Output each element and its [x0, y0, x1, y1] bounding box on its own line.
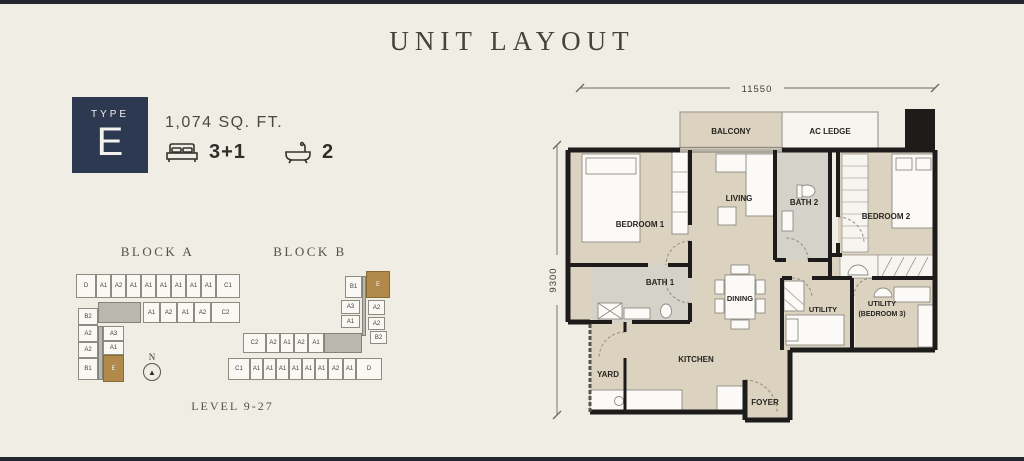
- unit-cell-highlight: E: [366, 271, 390, 298]
- unit-layout-page: UNIT LAYOUT TYPE E 1,074 SQ. FT. 3+1: [0, 0, 1024, 461]
- label-ac-ledge: AC LEDGE: [809, 127, 851, 136]
- unit-cell: A3: [341, 300, 360, 314]
- structural-column: [905, 109, 935, 150]
- type-label: TYPE: [91, 109, 129, 120]
- label-bedroom1: BEDROOM 1: [616, 220, 665, 229]
- north-arrow-icon: ▲: [143, 363, 161, 381]
- unit-cell: C2: [243, 333, 266, 353]
- unit-cell: A1: [315, 358, 328, 380]
- unit-cell: A1: [302, 358, 315, 380]
- unit-counts: 3+1 2: [165, 140, 334, 164]
- unit-cell: A1: [186, 274, 201, 298]
- unit-cell: A1: [308, 333, 324, 353]
- unit-cell: B1: [78, 358, 98, 380]
- unit-cell: A1: [341, 315, 360, 328]
- unit-cell: A1: [171, 274, 186, 298]
- north-label: N: [141, 352, 163, 362]
- label-bath1: BATH 1: [646, 278, 675, 287]
- block-a-title: BLOCK A: [70, 244, 245, 260]
- label-yard: YARD: [597, 370, 619, 379]
- unit-cell: A2: [78, 325, 98, 342]
- bed-icon: [165, 140, 199, 164]
- label-utility: UTILITY: [809, 305, 837, 314]
- label-kitchen: KITCHEN: [678, 355, 714, 364]
- unit-cell: A2: [328, 358, 343, 380]
- label-bedroom2: BEDROOM 2: [862, 212, 911, 221]
- block-b-plan: B1EA3A2A1A2B2C2A2A1A2A1C1A1A1A1A1A1A1A2A…: [225, 262, 420, 402]
- type-badge: TYPE E: [72, 97, 148, 173]
- dimension-width: 11550: [742, 84, 773, 95]
- unit-cell: D: [76, 274, 96, 298]
- core-cell: [324, 333, 362, 353]
- dimension-height: 9300: [548, 267, 559, 292]
- unit-cell: A1: [177, 302, 194, 323]
- unit-cell: A1: [143, 302, 160, 323]
- unit-cell: A1: [250, 358, 263, 380]
- unit-cell: A1: [156, 274, 171, 298]
- block-b-title: BLOCK B: [235, 244, 385, 260]
- unit-cell: C1: [228, 358, 250, 380]
- unit-cell: A1: [280, 333, 294, 353]
- floor-plan: 11550 9300: [520, 75, 990, 433]
- unit-cell: A2: [111, 274, 126, 298]
- level-range: LEVEL 9-27: [150, 399, 315, 414]
- unit-cell: A2: [78, 342, 98, 358]
- unit-cell: A2: [368, 300, 385, 315]
- label-living: LIVING: [726, 194, 753, 203]
- bath-icon: [284, 140, 312, 164]
- unit-cell: A2: [266, 333, 280, 353]
- top-border-bar: [0, 0, 1024, 4]
- unit-cell: A1: [201, 274, 216, 298]
- unit-cell: A3: [103, 326, 124, 341]
- unit-cell: A1: [96, 274, 111, 298]
- label-utility3-line2: (BEDROOM 3): [858, 311, 905, 318]
- core-cell: [362, 276, 366, 336]
- unit-cell: A1: [343, 358, 356, 380]
- label-utility3-line1: UTILITY: [868, 299, 896, 308]
- unit-cell: A1: [276, 358, 289, 380]
- core-cell: [98, 302, 141, 323]
- north-indicator: N ▲: [141, 352, 163, 381]
- unit-cell: A1: [289, 358, 302, 380]
- page-title: UNIT LAYOUT: [0, 26, 1024, 57]
- unit-cell: A2: [160, 302, 177, 323]
- label-balcony: BALCONY: [711, 127, 751, 136]
- unit-cell: A1: [141, 274, 156, 298]
- unit-cell: A2: [194, 302, 211, 323]
- unit-cell: D: [356, 358, 382, 380]
- type-value: E: [97, 122, 124, 162]
- bath-count: 2: [322, 141, 334, 164]
- unit-cell: B1: [345, 276, 362, 298]
- block-a-plan: DA1A2A1A1A1A1A1A1C1A1A2A1A2C2B2A2A2B1A3A…: [62, 262, 252, 402]
- label-dining: DINING: [727, 294, 753, 303]
- unit-cell: A1: [126, 274, 141, 298]
- unit-cell: A2: [294, 333, 308, 353]
- unit-cell: A2: [368, 317, 385, 330]
- unit-cell: B2: [78, 308, 98, 325]
- label-bath2: BATH 2: [790, 198, 819, 207]
- bottom-border-bar: [0, 457, 1024, 461]
- bed-count: 3+1: [209, 141, 246, 164]
- unit-cell-highlight: E: [103, 355, 124, 382]
- unit-cell: B2: [370, 331, 387, 344]
- unit-area: 1,074 SQ. FT.: [165, 114, 283, 132]
- unit-cell: A1: [103, 341, 124, 355]
- label-foyer: FOYER: [751, 398, 779, 407]
- unit-cell: A1: [263, 358, 276, 380]
